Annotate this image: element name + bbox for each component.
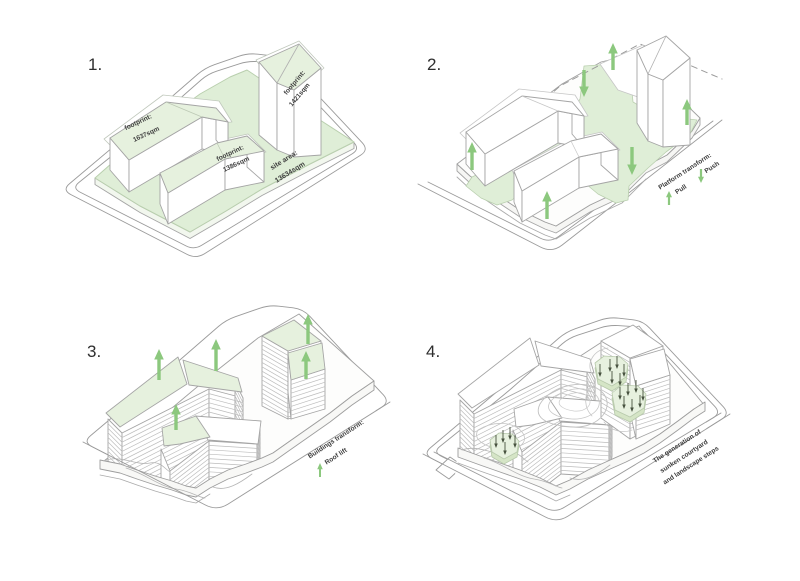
svg-text:1.: 1. — [88, 55, 102, 74]
svg-text:2.: 2. — [427, 55, 441, 74]
svg-text:4.: 4. — [426, 342, 440, 361]
svg-text:3.: 3. — [87, 342, 101, 361]
